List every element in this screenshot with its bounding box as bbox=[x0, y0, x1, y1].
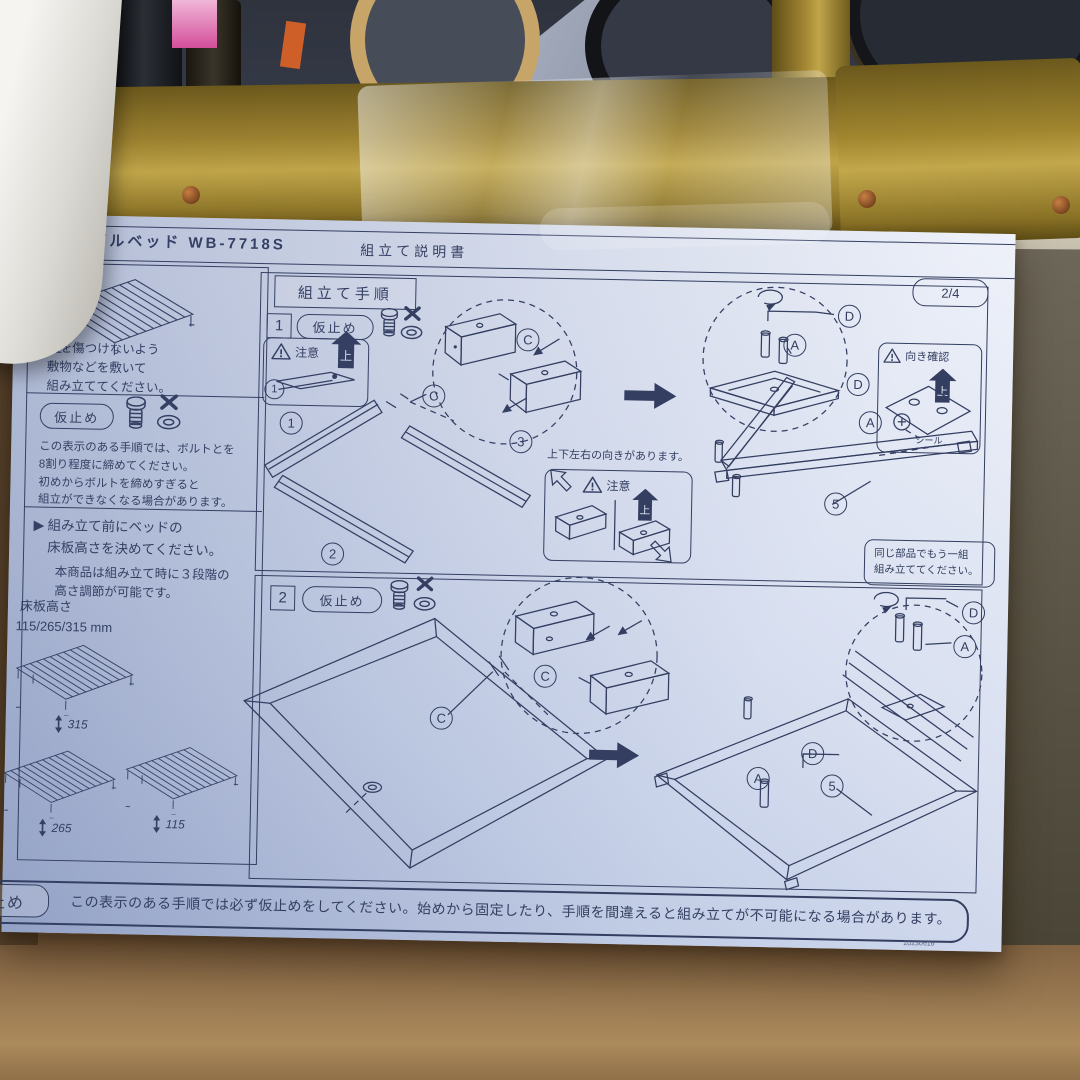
slat-height-265-diagram bbox=[0, 744, 121, 821]
document-title: 組立て説明書 bbox=[360, 240, 468, 263]
orientation-note: 上下左右の向きがあります。 bbox=[547, 447, 689, 466]
up-down-arrow-icon bbox=[151, 815, 161, 833]
up-down-arrow-icon bbox=[53, 715, 63, 733]
copper-screw bbox=[858, 190, 876, 208]
plastic-wrap-streak bbox=[540, 201, 831, 251]
x-mark-icon bbox=[160, 394, 178, 410]
footer-karidome-badge: 仮止め bbox=[0, 883, 49, 918]
height-sub-note: 本商品は組み立て時に３段階の 高さ調節が可能です。 bbox=[54, 563, 230, 604]
height-115-label-row: 115 bbox=[151, 815, 184, 834]
karidome-badge: 仮止め bbox=[40, 403, 115, 430]
direction-check-row: 向き確認 bbox=[883, 347, 949, 364]
background-pink-label bbox=[172, 0, 217, 48]
slat-height-315-diagram bbox=[10, 638, 140, 719]
duplicate-note-text: 同じ部品でもう一組 組み立ててください。 bbox=[874, 547, 979, 581]
height-heading-marker: ▶ bbox=[33, 514, 44, 535]
instruction-sheet: シングルベッド WB-7718S 組立て説明書 2/4 床を傷つけないよう 敷物… bbox=[1, 214, 1015, 952]
gold-bed-frame-rail-2 bbox=[835, 58, 1080, 246]
cardboard-floor bbox=[0, 935, 1080, 1080]
photo-of-assembly-instructions: { "scene": { "colors": { "cardboard": "#… bbox=[0, 0, 1080, 1080]
height-265-value: 265 bbox=[51, 819, 71, 837]
washer-icon bbox=[156, 414, 182, 431]
bolt-icon bbox=[124, 396, 149, 430]
height-265-label-row: 265 bbox=[37, 819, 71, 838]
seal-label: シール bbox=[915, 434, 942, 448]
floor-protection-note: 床を傷つけないよう 敷物などを敷いて 組み立ててください。 bbox=[46, 339, 172, 398]
up-arrow-label: 上 bbox=[640, 505, 651, 517]
up-down-arrow-icon bbox=[37, 819, 47, 837]
footer-code: 20230616 bbox=[903, 939, 934, 950]
copper-screw bbox=[1052, 196, 1070, 214]
height-115-value: 115 bbox=[165, 815, 184, 833]
warning-icon bbox=[883, 347, 901, 363]
direction-check-label: 向き確認 bbox=[905, 348, 949, 365]
slat-height-115-diagram bbox=[120, 740, 243, 817]
height-315-label-row: 315 bbox=[53, 715, 87, 734]
up-arrow: 上 bbox=[632, 488, 659, 526]
orientation-sketch bbox=[547, 483, 686, 560]
floor-height-values: 115/265/315 mm bbox=[15, 616, 112, 637]
height-heading: 組み立て前にベッドの 床板高さを決めてください。 bbox=[47, 515, 223, 562]
background-cardboard-shadow bbox=[1002, 230, 1080, 945]
step2-diagram bbox=[249, 575, 985, 892]
copper-screw bbox=[182, 186, 200, 204]
duplicate-note-box: 同じ部品でもう一組 組み立ててください。 bbox=[864, 539, 996, 588]
floor-height-label: 床板高さ bbox=[20, 596, 72, 617]
karidome-explanation: この表示のある手順では、ボルトとを 8割り程度に締めてください。 初めからボルト… bbox=[38, 439, 235, 514]
height-315-value: 315 bbox=[67, 715, 87, 733]
